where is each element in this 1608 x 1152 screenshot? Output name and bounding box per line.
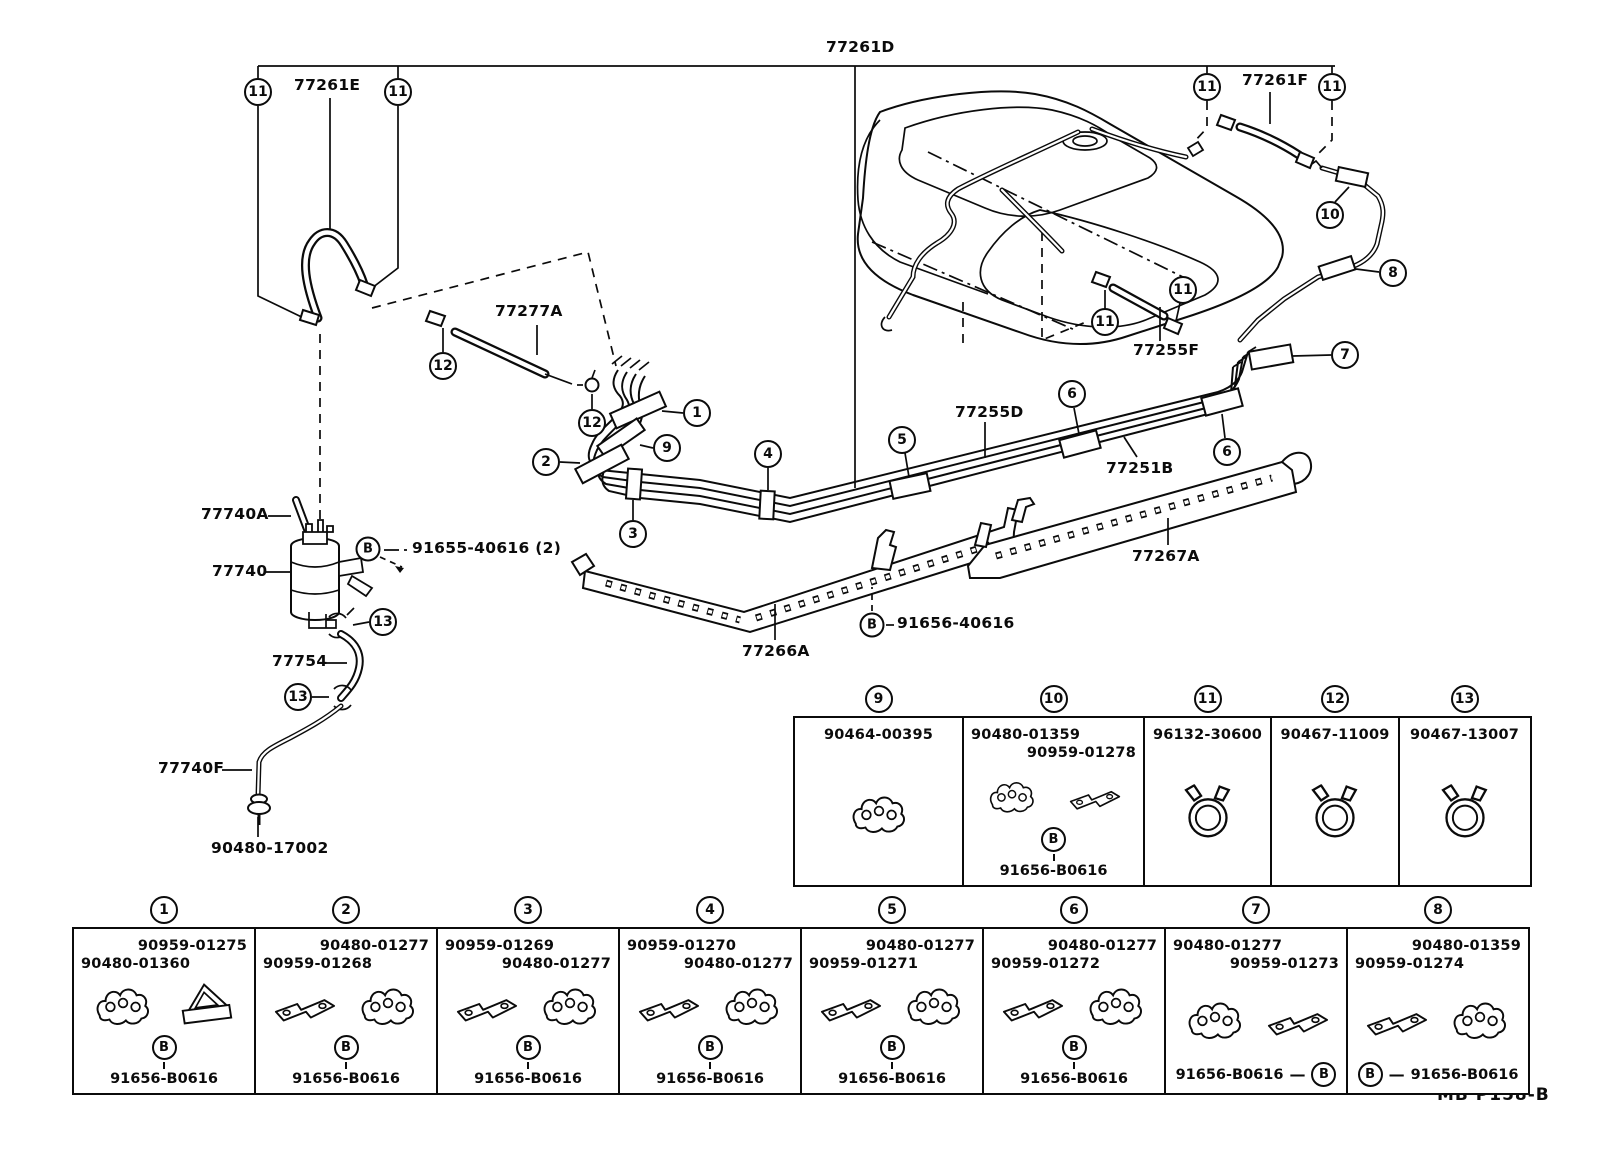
- legend-cell-6: 6 90480-01277 90959-01272 B 91656-B0616: [982, 929, 1164, 1093]
- part-label-77740: 77740: [212, 562, 267, 580]
- bolt-part-number: 91656-B0616: [838, 1071, 946, 1087]
- parts-diagram-page: 77261D 77261E 77261F 77277A 77255F 77255…: [0, 0, 1608, 1152]
- leader-line: [891, 1062, 893, 1069]
- leader-line: [1053, 854, 1055, 861]
- tube-clip-icon: [1184, 994, 1246, 1042]
- part-number: 90480-01359: [971, 726, 1136, 744]
- callout-B: B: [698, 1035, 723, 1060]
- callout-6: 6: [1058, 380, 1086, 408]
- part-label-77251B: 77251B: [1106, 459, 1174, 477]
- leader-line: [709, 1062, 711, 1069]
- legend-cell-8: 8 90480-01359 90959-01274 B — 91656-B061…: [1346, 929, 1528, 1093]
- callout-5: 5: [878, 896, 906, 924]
- bolt-callout: B 91656-B0616: [445, 1035, 611, 1087]
- tube-clip-icon: [848, 788, 910, 836]
- callout-11: 11: [1091, 308, 1119, 336]
- legend-cell-9: 9 90464-00395: [795, 718, 962, 885]
- hose-clamp-icon: [1298, 784, 1372, 840]
- tube-clip-icon: [357, 980, 419, 1028]
- part-label-77266A: 77266A: [742, 642, 810, 660]
- bolt-part-number: 91656-B0616: [474, 1071, 582, 1087]
- bolt-part-number: 91656-B0616: [656, 1071, 764, 1087]
- part-label-77261F: 77261F: [1242, 71, 1308, 89]
- part-number: 90480-01277: [1173, 937, 1339, 955]
- legend-cell-1: 1 90959-01275 90480-01360 B 91656-B0616: [74, 929, 254, 1093]
- leader-line: [345, 1062, 347, 1069]
- mount-bracket-icon: [1366, 994, 1428, 1042]
- callout-3: 3: [619, 520, 647, 548]
- callout-2: 2: [332, 896, 360, 924]
- callout-8: 8: [1424, 896, 1452, 924]
- triangle-bracket-icon: [175, 980, 237, 1028]
- callout-11: 11: [1318, 73, 1346, 101]
- bolt-part-number: 91656-B0616: [1020, 1071, 1128, 1087]
- legend-cell-13: 13 90467-13007: [1398, 718, 1529, 885]
- part-number: 90464-00395: [802, 726, 955, 744]
- bolt-callout: B 91656-B0616: [991, 1035, 1157, 1087]
- tube-clip-icon: [1085, 980, 1147, 1028]
- bolt-part-number: 91656-B0616: [1176, 1067, 1284, 1083]
- callout-B: B: [1062, 1035, 1087, 1060]
- callout-11: 11: [384, 78, 412, 106]
- callout-11: 11: [244, 78, 272, 106]
- callout-B: B: [880, 1035, 905, 1060]
- protector-plate-upper-drawing: [872, 453, 1311, 625]
- pipe-clamp-glyph: [626, 469, 642, 500]
- legend-cell-4: 4 90959-01270 90480-01277 B 91656-B0616: [618, 929, 800, 1093]
- pipe-clamp-glyph: [1336, 167, 1368, 187]
- callout-13: 13: [1451, 685, 1479, 713]
- mount-bracket-icon: [274, 980, 336, 1028]
- callout-B: B: [1358, 1062, 1383, 1087]
- bolt-callout: B 91656-B0616: [81, 1035, 247, 1087]
- part-label-77255D: 77255D: [955, 403, 1024, 421]
- tube-clip-icon: [986, 775, 1038, 815]
- callout-13: 13: [284, 683, 312, 711]
- callout-3: 3: [514, 896, 542, 924]
- mount-bracket-icon: [1002, 980, 1064, 1028]
- callout-11: 11: [1169, 276, 1197, 304]
- part-number: 90959-01268: [263, 955, 429, 973]
- part-number: 90959-01270: [627, 937, 793, 955]
- bolt-callout: 91656-B0616 — B: [1173, 1062, 1339, 1087]
- legend-cell-11: 11 96132-30600: [1143, 718, 1270, 885]
- part-number: 90959-01275: [81, 937, 247, 955]
- part-number: 90480-01277: [263, 937, 429, 955]
- bolt-callout: B 91656-B0616: [627, 1035, 793, 1087]
- bolt-part-number: 91656-B0616: [1000, 863, 1108, 879]
- part-label-90480-17002: 90480-17002: [211, 839, 329, 857]
- mount-bracket-icon: [456, 980, 518, 1028]
- part-number: 90959-01272: [991, 955, 1157, 973]
- callout-2: 2: [532, 448, 560, 476]
- callout-B: B: [334, 1035, 359, 1060]
- callout-7: 7: [1242, 896, 1270, 924]
- callout-9: 9: [865, 685, 893, 713]
- assembly-leader-lines: [258, 66, 1335, 488]
- mount-bracket-icon: [820, 980, 882, 1028]
- callout-B: B: [356, 537, 381, 562]
- legend-cell-10: 10 90480-01359 90959-01278 B 91656-B0616: [962, 718, 1143, 885]
- part-label-77261D: 77261D: [826, 38, 895, 56]
- legend-cell-3: 3 90959-01269 90480-01277 B 91656-B0616: [436, 929, 618, 1093]
- part-number: 90480-01277: [991, 937, 1157, 955]
- pipe-clamp-glyph: [759, 491, 774, 520]
- callout-7: 7: [1331, 341, 1359, 369]
- part-number: 90959-01274: [1355, 955, 1521, 973]
- legend-table-clamps: 9 90464-00395 10 90480-01359 90959-01278…: [793, 716, 1532, 887]
- part-label-77754: 77754: [272, 652, 327, 670]
- callout-8: 8: [1379, 259, 1407, 287]
- leader-line: [527, 1062, 529, 1069]
- part-number: 96132-30600: [1152, 726, 1263, 744]
- callout-12: 12: [1321, 685, 1349, 713]
- part-label-77261E: 77261E: [294, 76, 360, 94]
- part-number: 90480-01277: [627, 955, 793, 973]
- callout-9: 9: [653, 434, 681, 462]
- callout-4: 4: [754, 440, 782, 468]
- callout-11: 11: [1193, 73, 1221, 101]
- part-number: 90959-01273: [1173, 955, 1339, 973]
- fuel-tank-drawing: [858, 91, 1283, 348]
- part-label-91656-40616: 91656-40616: [897, 614, 1015, 632]
- leader-line: [1073, 1062, 1075, 1069]
- legend-cell-7: 7 90480-01277 90959-01273 91656-B0616 — …: [1164, 929, 1346, 1093]
- pipe-clamp-glyph: [1059, 430, 1100, 457]
- mount-bracket-icon: [1267, 994, 1329, 1042]
- callout-4: 4: [696, 896, 724, 924]
- part-label-77255F: 77255F: [1133, 341, 1199, 359]
- callout-5: 5: [888, 426, 916, 454]
- part-label-91655-40616: 91655-40616 (2): [412, 539, 561, 557]
- pipe-clamp-glyph: [1201, 388, 1242, 415]
- tube-clip-icon: [539, 980, 601, 1028]
- pipe-clamp-glyph: [890, 473, 931, 499]
- mount-bracket-icon: [638, 980, 700, 1028]
- legend-table-clips: 1 90959-01275 90480-01360 B 91656-B0616 …: [72, 927, 1530, 1095]
- legend-cell-5: 5 90480-01277 90959-01271 B 91656-B0616: [800, 929, 982, 1093]
- callout-B: B: [1041, 827, 1066, 852]
- part-number: 90480-01360: [81, 955, 247, 973]
- callout-B: B: [516, 1035, 541, 1060]
- legend-cell-2: 2 90480-01277 90959-01268 B 91656-B0616: [254, 929, 436, 1093]
- hose-clamp-icon: [1171, 784, 1245, 840]
- part-number: 90480-01359: [1355, 937, 1521, 955]
- callout-6: 6: [1060, 896, 1088, 924]
- leader-line: [163, 1062, 165, 1069]
- callout-10: 10: [1316, 201, 1344, 229]
- part-number: 90467-13007: [1407, 726, 1522, 744]
- part-number: 90959-01269: [445, 937, 611, 955]
- hose-clamp-icon: [1428, 784, 1502, 840]
- callout-B: B: [860, 613, 885, 638]
- callout-12: 12: [578, 409, 606, 437]
- callout-12: 12: [429, 352, 457, 380]
- bolt-callout: B — 91656-B0616: [1355, 1062, 1521, 1087]
- callout-13: 13: [369, 608, 397, 636]
- callout-6: 6: [1213, 438, 1241, 466]
- part-label-77740F: 77740F: [158, 759, 224, 777]
- tube-clip-icon: [721, 980, 783, 1028]
- part-number: 90480-01277: [445, 955, 611, 973]
- callout-B: B: [152, 1035, 177, 1060]
- part-number: 90480-01277: [809, 937, 975, 955]
- bolt-callout: B 91656-B0616: [263, 1035, 429, 1087]
- part-number: 90467-11009: [1279, 726, 1391, 744]
- callout-B: B: [1311, 1062, 1336, 1087]
- tube-clip-icon: [1449, 994, 1511, 1042]
- pipe-clamp-glyph: [1319, 256, 1356, 280]
- tube-clip-icon: [903, 980, 965, 1028]
- bolt-callout: B 91656-B0616: [971, 827, 1136, 879]
- bolt-callout: B 91656-B0616: [809, 1035, 975, 1087]
- part-label-77267A: 77267A: [1132, 547, 1200, 565]
- callout-1: 1: [683, 399, 711, 427]
- bolt-part-number: 91656-B0616: [292, 1071, 400, 1087]
- mount-bracket-icon: [1069, 775, 1121, 815]
- callout-11: 11: [1194, 685, 1222, 713]
- bolt-part-number: 91656-B0616: [1411, 1067, 1519, 1083]
- callout-1: 1: [150, 896, 178, 924]
- callout-10: 10: [1040, 685, 1068, 713]
- tube-clip-icon: [92, 980, 154, 1028]
- part-label-77740A: 77740A: [201, 505, 269, 523]
- tank-vent-pipes-drawing: [1193, 92, 1383, 340]
- bolt-part-number: 91656-B0616: [110, 1071, 218, 1087]
- legend-cell-12: 12 90467-11009: [1270, 718, 1398, 885]
- part-number: 90959-01271: [809, 955, 975, 973]
- part-label-77277A: 77277A: [495, 302, 563, 320]
